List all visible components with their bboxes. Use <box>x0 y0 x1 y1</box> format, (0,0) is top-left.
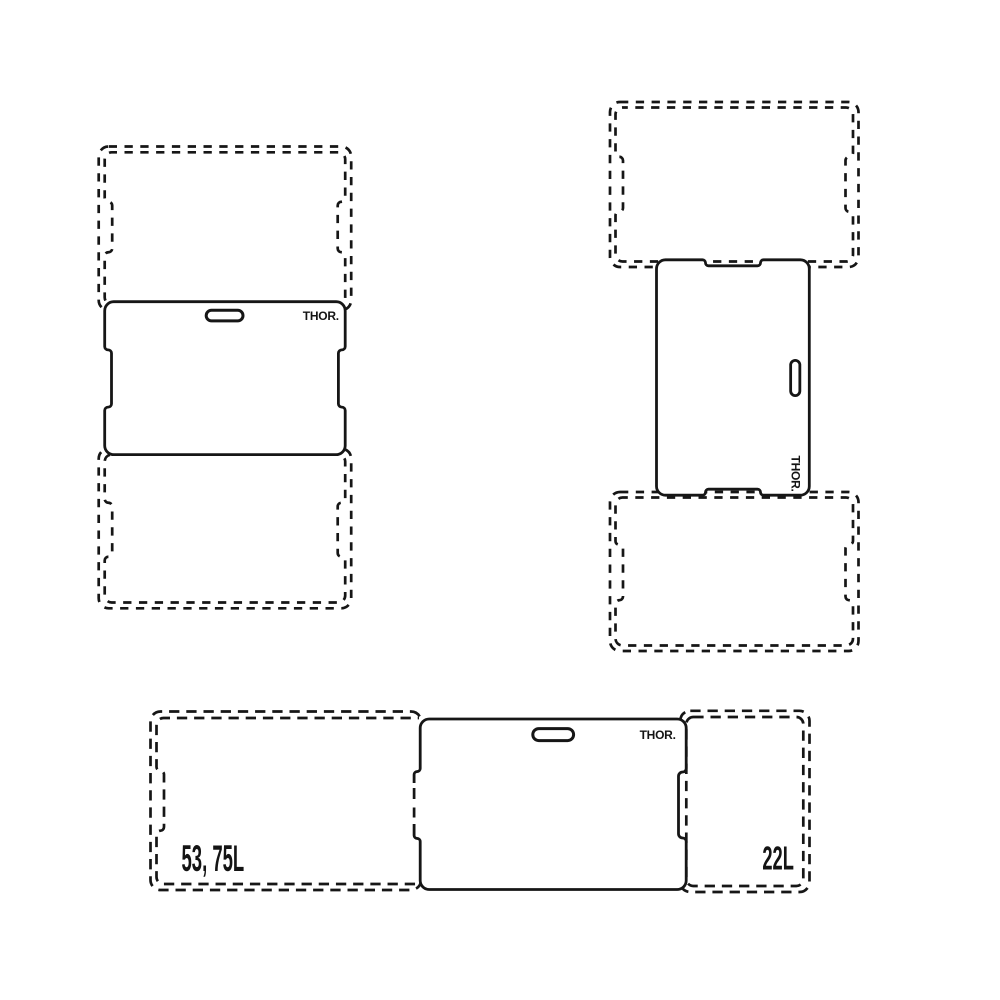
svg-text:22L: 22L <box>762 840 793 877</box>
svg-text:THOR.: THOR. <box>303 309 339 323</box>
svg-text:THOR.: THOR. <box>640 728 676 742</box>
svg-text:THOR.: THOR. <box>789 456 803 492</box>
svg-text:53, 75L: 53, 75L <box>182 839 245 879</box>
